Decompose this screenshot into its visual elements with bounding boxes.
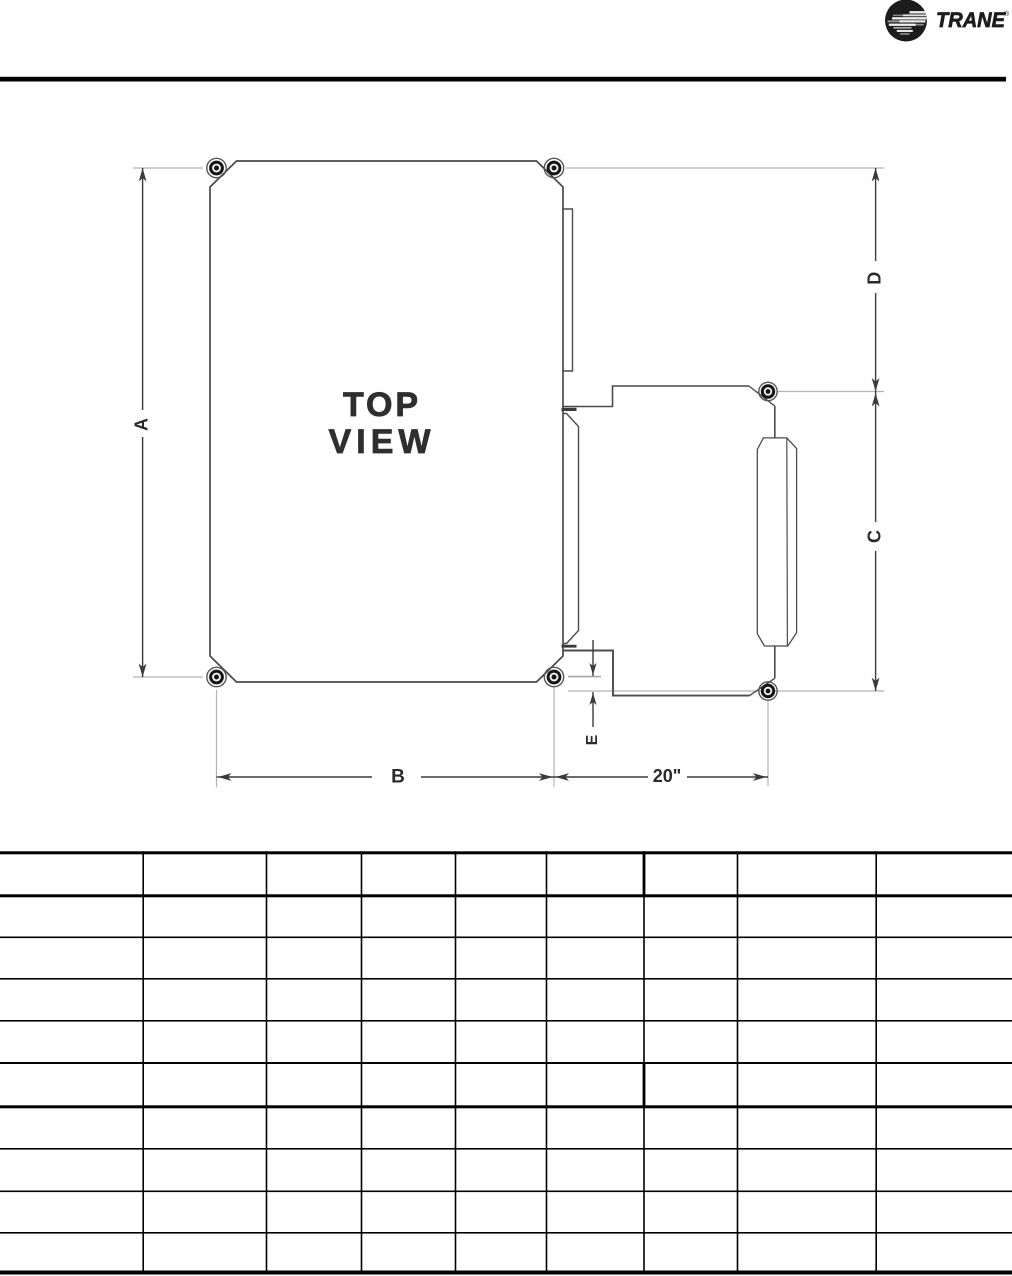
svg-text:TOP: TOP [343,386,419,424]
svg-text:C: C [865,530,885,543]
svg-text:D: D [865,272,885,285]
svg-text:20": 20" [653,766,682,786]
svg-text:B: B [391,767,405,788]
svg-text:®: ® [1004,10,1010,18]
svg-text:VIEW: VIEW [329,423,432,461]
svg-text:TRANE: TRANE [936,8,1006,32]
svg-text:E: E [584,734,601,745]
svg-text:A: A [132,418,152,431]
